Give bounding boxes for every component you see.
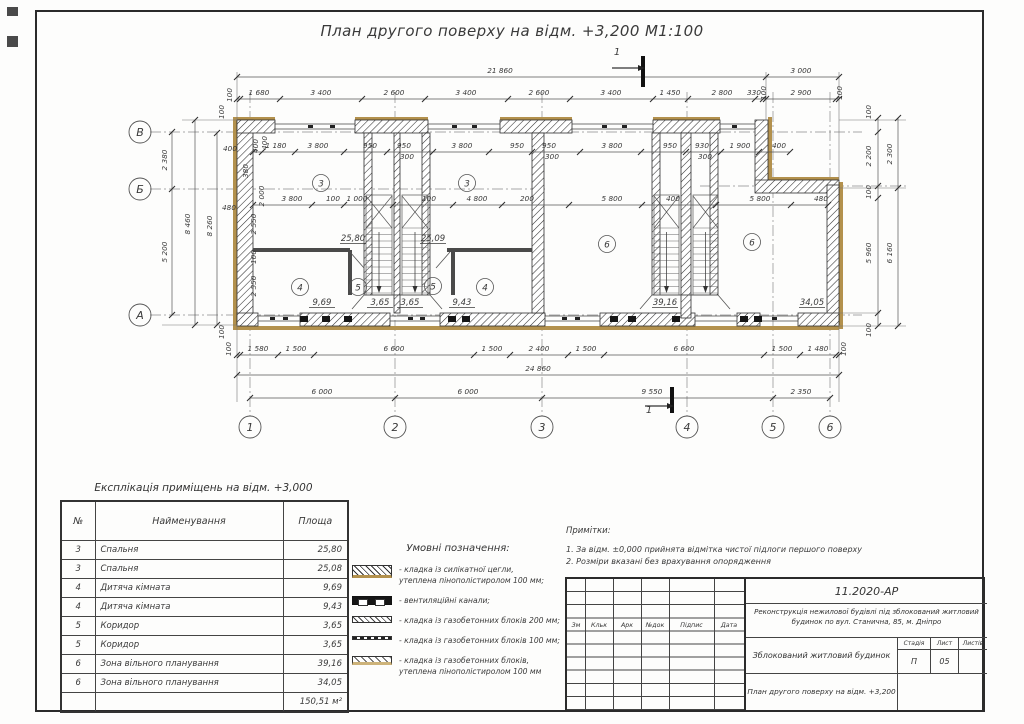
explication-header: Найменування: [95, 501, 283, 541]
revision-col-label: Арк: [613, 619, 641, 632]
svg-text:6 600: 6 600: [384, 344, 405, 353]
svg-text:24 860: 24 860: [525, 364, 551, 373]
svg-text:100: 100: [217, 325, 226, 339]
table-row: 5Коридор3,65: [61, 636, 348, 655]
block-insulated-swatch-icon: [352, 656, 392, 665]
svg-text:3 800: 3 800: [308, 141, 329, 150]
legend-item-text: - кладка із силікатної цегли, утеплена п…: [399, 564, 544, 586]
svg-text:34,05: 34,05: [800, 298, 824, 308]
legend-item: - кладка із газобетонних блоків, утеплен…: [352, 655, 564, 677]
table-row: 3Спальня25,08: [61, 560, 348, 579]
svg-text:1 450: 1 450: [660, 88, 681, 97]
sheets-label: Листів: [959, 638, 987, 650]
svg-text:25,09: 25,09: [421, 234, 445, 244]
svg-text:4 800: 4 800: [467, 194, 488, 203]
svg-text:1 500: 1 500: [286, 344, 307, 353]
svg-text:930: 930: [695, 141, 709, 150]
svg-text:950: 950: [542, 141, 556, 150]
svg-text:100: 100: [835, 86, 844, 100]
vent-swatch-icon: [352, 596, 392, 605]
svg-text:3 400: 3 400: [601, 88, 622, 97]
svg-text:950: 950: [363, 141, 377, 150]
stage-label: Стадія: [898, 638, 931, 650]
svg-text:200: 200: [520, 194, 534, 203]
legend-item-text: - кладка із газобетонних блоків, утеплен…: [399, 655, 541, 677]
floor-plan: 21 8603 0001001 6803 4002 6003 4002 6003…: [0, 0, 1024, 480]
notes: Примітки: 1. За відм. ±0,000 прийнята ві…: [566, 526, 906, 568]
explication-table: №НайменуванняПлоща 3Спальня25,803Спальня…: [60, 500, 349, 713]
svg-text:4: 4: [297, 284, 303, 294]
svg-text:1 580: 1 580: [248, 344, 269, 353]
sheet-label: Лист: [931, 638, 959, 650]
revision-col-label: Підпис: [669, 619, 714, 632]
svg-text:3,65: 3,65: [401, 298, 420, 308]
legend-item-text: - вентиляційні канали;: [399, 595, 490, 606]
stage-value: П: [898, 650, 931, 674]
table-row: 4Дитяча кімната9,43: [61, 598, 348, 617]
svg-text:5 200: 5 200: [160, 241, 169, 262]
svg-text:100: 100: [225, 88, 234, 102]
svg-text:3: 3: [464, 180, 470, 190]
object-name: Зблокований житловий будинок: [746, 638, 898, 674]
svg-text:5: 5: [355, 284, 361, 294]
svg-text:2 550: 2 550: [249, 213, 258, 234]
svg-text:Б: Б: [136, 183, 144, 196]
svg-text:9,69: 9,69: [313, 298, 332, 308]
svg-text:3 800: 3 800: [602, 141, 623, 150]
svg-text:2 350: 2 350: [791, 387, 812, 396]
legend-item-text: - кладка із газобетонних блоків 100 мм;: [399, 635, 560, 646]
svg-text:1: 1: [247, 421, 254, 434]
title-block: ЗмКлькАрк№докПідписДата 11.2020-АР Рекон…: [565, 577, 985, 712]
svg-text:1: 1: [614, 47, 620, 58]
legend-title: Умовні позначення:: [352, 543, 564, 554]
svg-text:480: 480: [814, 194, 828, 203]
svg-text:21 860: 21 860: [487, 66, 513, 75]
plan-geometry: [150, 56, 908, 416]
svg-text:3,65: 3,65: [371, 298, 390, 308]
svg-text:2 300: 2 300: [885, 143, 894, 164]
legend-item: - кладка із газобетонних блоків 100 мм;: [352, 635, 564, 646]
svg-text:2 550: 2 550: [249, 275, 258, 296]
svg-text:3: 3: [318, 180, 324, 190]
table-row: 4Дитяча кімната9,69: [61, 579, 348, 598]
svg-text:3 800: 3 800: [282, 194, 303, 203]
svg-text:380: 380: [241, 164, 250, 178]
svg-text:300: 300: [545, 152, 559, 161]
svg-text:3 000: 3 000: [791, 66, 812, 75]
svg-text:1 680: 1 680: [249, 88, 270, 97]
explication: Експлікація приміщень на відм. +3,000 №Н…: [60, 482, 347, 713]
svg-text:300: 300: [400, 152, 414, 161]
svg-text:950: 950: [663, 141, 677, 150]
svg-text:2: 2: [392, 421, 399, 434]
legend-item-text: - кладка із газобетонних блоків 200 мм;: [399, 615, 560, 626]
svg-text:480: 480: [222, 203, 236, 212]
svg-text:5 960: 5 960: [864, 242, 873, 263]
explication-header: №: [61, 501, 95, 541]
svg-text:8 260: 8 260: [205, 215, 214, 236]
svg-text:100: 100: [217, 105, 226, 119]
table-row: 5Коридор3,65: [61, 617, 348, 636]
title-block-revision-grid: ЗмКлькАрк№докПідписДата: [567, 579, 744, 710]
sheets-total: [959, 650, 987, 674]
svg-text:400: 400: [772, 141, 786, 150]
svg-text:5 800: 5 800: [750, 194, 771, 203]
svg-text:1 900: 1 900: [730, 141, 751, 150]
svg-text:8 460: 8 460: [183, 213, 192, 234]
svg-text:6: 6: [827, 421, 834, 434]
svg-text:6: 6: [749, 239, 755, 249]
svg-text:950: 950: [397, 141, 411, 150]
svg-text:2 900: 2 900: [791, 88, 812, 97]
explication-title: Експлікація приміщень на відм. +3,000: [60, 482, 347, 494]
legend-item: - вентиляційні канали;: [352, 595, 564, 606]
svg-text:5 800: 5 800: [602, 194, 623, 203]
svg-text:400: 400: [251, 139, 260, 153]
svg-text:3: 3: [539, 421, 546, 434]
svg-text:3 400: 3 400: [456, 88, 477, 97]
svg-text:2 000: 2 000: [257, 185, 266, 206]
svg-text:6 000: 6 000: [458, 387, 479, 396]
svg-text:6 600: 6 600: [674, 344, 695, 353]
svg-text:100: 100: [864, 185, 873, 199]
svg-text:1 000: 1 000: [347, 194, 368, 203]
svg-text:100: 100: [422, 194, 436, 203]
svg-text:25,80: 25,80: [341, 234, 365, 244]
svg-text:9,43: 9,43: [453, 298, 472, 308]
table-row: 6Зона вільного планування39,16: [61, 655, 348, 674]
svg-text:400: 400: [666, 194, 680, 203]
svg-text:2 200: 2 200: [864, 145, 873, 166]
svg-text:5: 5: [430, 283, 436, 293]
svg-text:400: 400: [223, 144, 237, 153]
legend-item: - кладка із газобетонних блоків 200 мм;: [352, 615, 564, 626]
svg-text:3 800: 3 800: [452, 141, 473, 150]
svg-text:В: В: [136, 126, 144, 139]
table-row: 6Зона вільного планування34,05: [61, 674, 348, 693]
block200-swatch-icon: [352, 616, 392, 623]
svg-text:300: 300: [698, 152, 712, 161]
svg-text:3 400: 3 400: [311, 88, 332, 97]
svg-text:6 160: 6 160: [885, 242, 894, 263]
svg-text:100: 100: [224, 342, 233, 356]
svg-text:9 550: 9 550: [642, 387, 663, 396]
svg-text:5: 5: [770, 421, 777, 434]
svg-text:6: 6: [604, 241, 610, 251]
svg-text:1 480: 1 480: [808, 344, 829, 353]
svg-text:6 000: 6 000: [312, 387, 333, 396]
svg-text:2 600: 2 600: [384, 88, 405, 97]
svg-text:2 400: 2 400: [529, 344, 550, 353]
explication-header: Площа: [283, 501, 348, 541]
svg-text:100: 100: [326, 194, 340, 203]
svg-text:2 380: 2 380: [160, 149, 169, 170]
svg-text:2 800: 2 800: [712, 88, 733, 97]
svg-text:4: 4: [684, 421, 691, 434]
revision-col-label: №док: [641, 619, 669, 632]
revision-col-label: Кльк: [585, 619, 613, 632]
svg-text:100: 100: [759, 86, 768, 100]
svg-text:100: 100: [249, 250, 258, 264]
svg-text:2 600: 2 600: [529, 88, 550, 97]
table-total-row: 150,51 м²: [61, 693, 348, 713]
drawing-sheet: План другого поверху на відм. +3,200 М1:…: [0, 0, 1024, 724]
block100-swatch-icon: [352, 636, 392, 640]
svg-text:400: 400: [260, 136, 269, 150]
notes-lines: 1. За відм. ±0,000 прийнята відмітка чис…: [566, 544, 906, 568]
legend: Умовні позначення: - кладка із силікатно…: [352, 543, 564, 686]
revision-col-label: Дата: [714, 619, 744, 632]
project-name: Реконструкція нежилової будівлі під збло…: [746, 604, 987, 638]
svg-text:1 500: 1 500: [772, 344, 793, 353]
explication-header-row: №НайменуванняПлоща: [61, 501, 348, 541]
svg-text:100: 100: [839, 342, 848, 356]
table-row: 3Спальня25,80: [61, 541, 348, 560]
sheet-caption: План другого поверху на відм. +3,200 М1:…: [746, 674, 898, 710]
notes-title: Примітки:: [566, 526, 906, 536]
svg-text:950: 950: [510, 141, 524, 150]
svg-text:4: 4: [482, 284, 488, 294]
revision-col-label: Зм: [567, 619, 585, 632]
brick-swatch-icon: [352, 565, 392, 578]
svg-text:1 500: 1 500: [482, 344, 503, 353]
document-number: 11.2020-АР: [746, 579, 987, 604]
svg-text:А: А: [135, 309, 144, 322]
svg-text:1: 1: [646, 405, 652, 416]
legend-item: - кладка із силікатної цегли, утеплена п…: [352, 564, 564, 586]
svg-text:39,16: 39,16: [653, 298, 678, 308]
title-block-right: 11.2020-АР Реконструкція нежилової будів…: [744, 579, 985, 710]
sheet-number: 05: [931, 650, 959, 674]
stage-sheet-grid: Стадія Лист Листів П 05: [898, 638, 987, 674]
svg-text:100: 100: [864, 323, 873, 337]
svg-text:1 500: 1 500: [576, 344, 597, 353]
svg-text:100: 100: [864, 105, 873, 119]
